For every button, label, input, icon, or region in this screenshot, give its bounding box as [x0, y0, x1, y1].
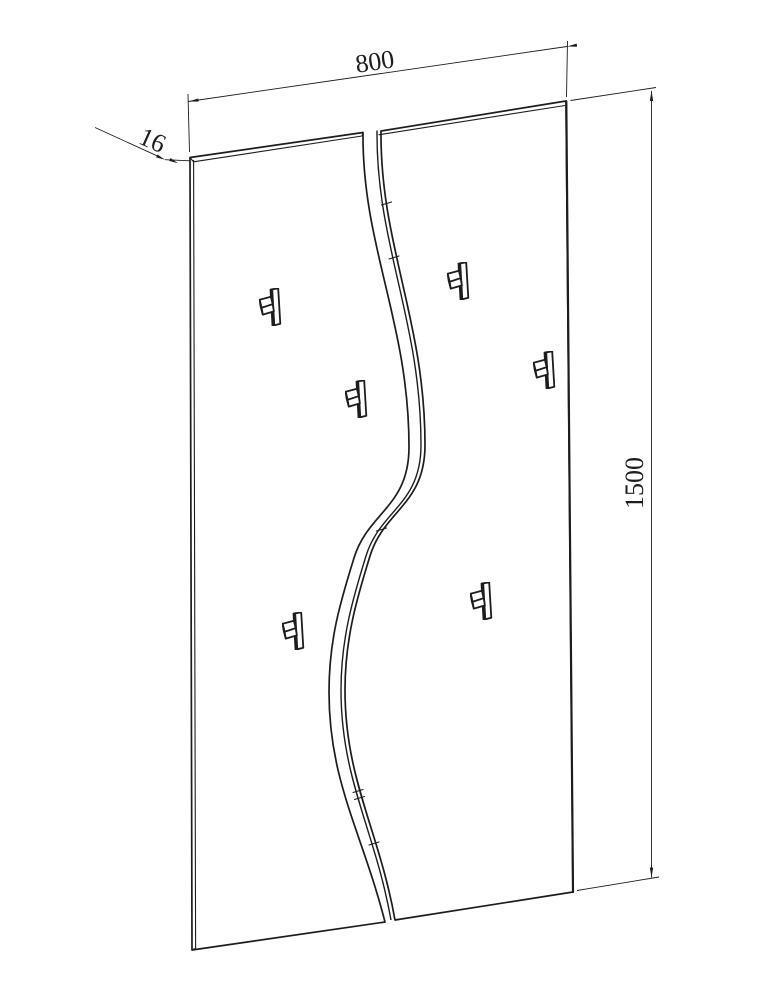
height-extension-line-top — [571, 88, 657, 101]
height-extension-line-bottom — [577, 877, 659, 891]
thickness-dimension-label: 16 — [135, 122, 171, 159]
width-arrow-right — [567, 44, 577, 47]
width-extension-line-left — [188, 94, 190, 152]
coat-rack-technical-drawing: 800 16 1500 — [0, 0, 778, 1000]
dimension-thickness: 16 — [95, 122, 190, 163]
width-dimension-label: 800 — [353, 44, 396, 78]
height-arrow-top — [650, 91, 653, 101]
width-extension-line-right — [567, 41, 568, 97]
width-arrow-left — [189, 99, 199, 102]
drawing-sheet: 800 16 1500 — [0, 0, 778, 1000]
dimension-height: 1500 — [571, 88, 660, 891]
height-dimension-label: 1500 — [620, 457, 649, 509]
thickness-leader-tail — [165, 160, 190, 161]
height-arrow-bottom — [650, 868, 653, 878]
